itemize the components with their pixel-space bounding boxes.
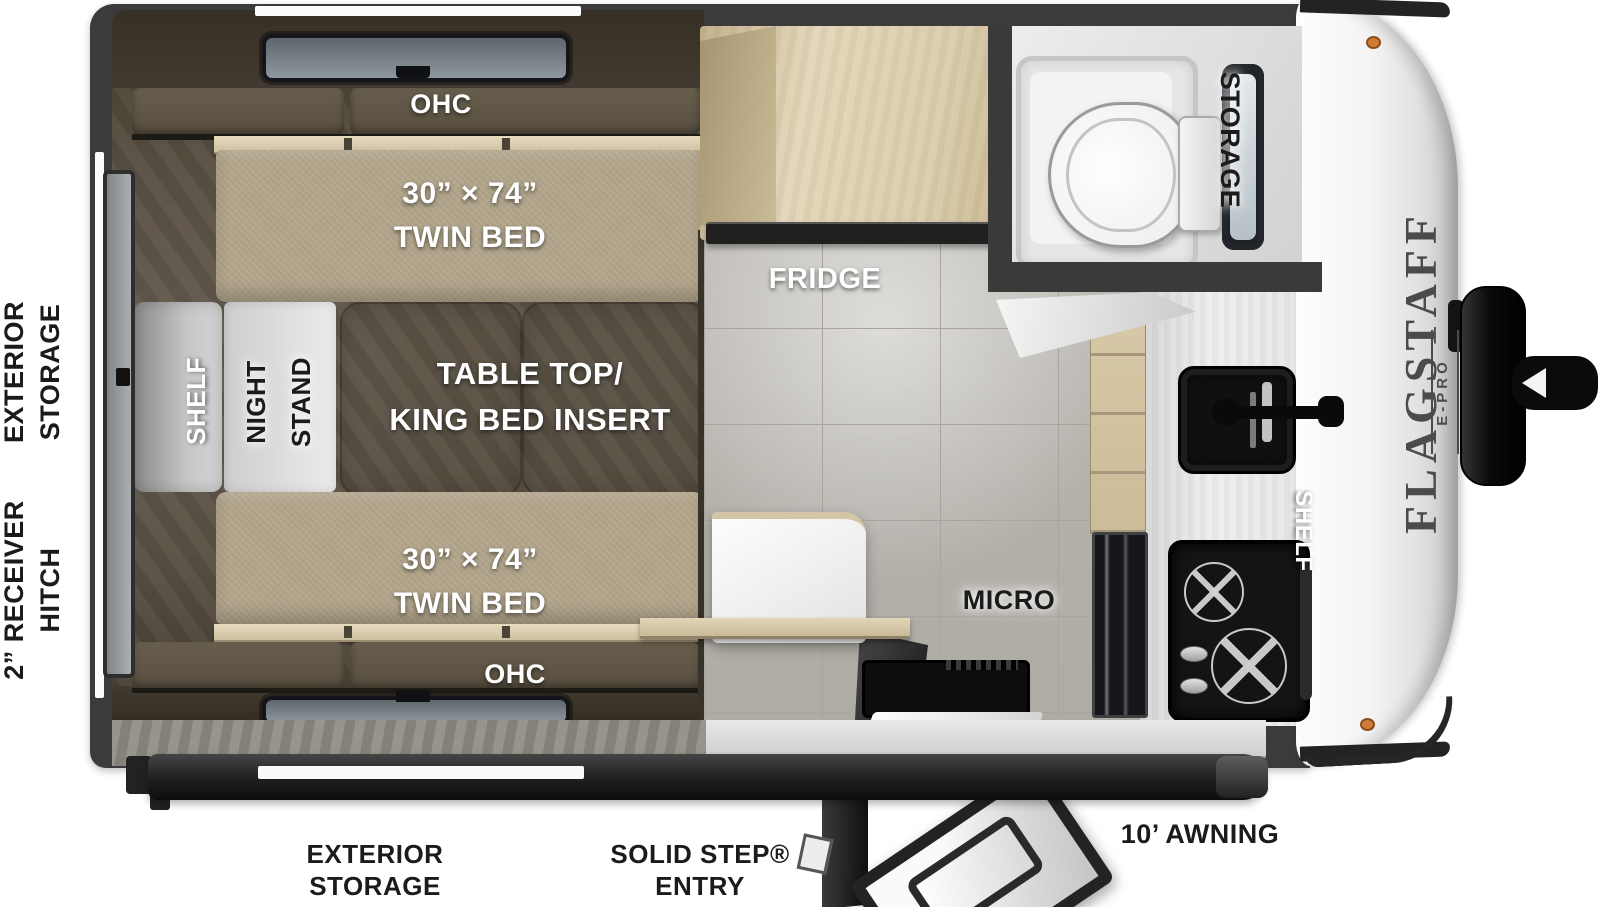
label-solid-step-l2: ENTRY xyxy=(555,870,845,902)
backrest-cushion xyxy=(132,642,344,690)
rail-notch xyxy=(502,138,510,150)
label-rear-exterior-storage: EXTERIOR STORAGE xyxy=(0,277,70,467)
label-twin-bed-bottom-size: 30” × 74” xyxy=(320,538,620,582)
marker-light-icon xyxy=(1366,36,1381,49)
rail-notch xyxy=(344,626,352,638)
faucet-handle xyxy=(1318,396,1344,427)
burner-icon xyxy=(1184,562,1244,622)
label-exterior-storage-l1: EXTERIOR xyxy=(255,838,495,870)
backrest-cushion xyxy=(132,88,344,136)
label-night-stand-l1: NIGHT xyxy=(234,302,279,502)
jack-crank-icon xyxy=(1522,368,1546,398)
cooktop-knob xyxy=(1180,646,1208,662)
label-night-stand: NIGHT STAND xyxy=(234,302,326,502)
brand-sub-logo: E-PRO xyxy=(1431,330,1459,454)
floorplan-canvas: OHC 30” × 74” TWIN BED SHELF NIGHT STAND… xyxy=(0,0,1600,907)
label-ohc-bottom: OHC xyxy=(435,658,595,690)
burner-icon xyxy=(1211,628,1287,704)
label-twin-bed-top-name: TWIN BED xyxy=(320,216,620,260)
bathroom-wall-front xyxy=(988,262,1322,292)
label-table-top-l1: TABLE TOP/ xyxy=(330,351,730,397)
body-trim-top xyxy=(255,6,581,16)
fridge-cabinet-side xyxy=(700,26,776,240)
microwave-vent xyxy=(946,660,1018,670)
rail-notch xyxy=(344,138,352,150)
solid-step-tread xyxy=(905,813,1046,907)
label-solid-step-l1: SOLID STEP® xyxy=(555,838,845,870)
label-exterior-storage: EXTERIOR STORAGE xyxy=(255,838,495,902)
label-night-stand-l2: STAND xyxy=(279,302,324,502)
cap-rim-corner xyxy=(1300,696,1455,768)
label-receiver-hitch-l1: 2” RECEIVER xyxy=(0,470,32,710)
label-awning: 10’ AWNING xyxy=(1075,818,1325,850)
bathroom-wall xyxy=(988,26,1012,292)
label-exterior-storage-l2: STORAGE xyxy=(255,870,495,902)
label-ohc-top: OHC xyxy=(361,88,521,120)
toilet-seat xyxy=(1066,118,1176,232)
jack-handle xyxy=(1512,356,1598,410)
label-solid-step-entry: SOLID STEP® ENTRY xyxy=(555,838,845,902)
label-bath-storage: STORAGE xyxy=(1213,40,1247,240)
cooktop-knob xyxy=(1180,678,1208,694)
label-table-top: TABLE TOP/ KING BED INSERT xyxy=(330,351,730,443)
awning-endcap xyxy=(1216,756,1268,798)
label-receiver-hitch-l2: HITCH xyxy=(32,470,68,710)
label-rear-storage-l1: EXTERIOR xyxy=(0,277,32,467)
label-kitchen-shelf: SHELF xyxy=(1289,466,1317,596)
marker-light-icon xyxy=(1360,718,1375,731)
label-twin-bed-top-size: 30” × 74” xyxy=(320,172,620,216)
rear-window-latch xyxy=(116,368,130,386)
rear-window xyxy=(103,170,135,678)
window-latch-bottom xyxy=(396,690,430,702)
label-twin-bed-bottom: 30” × 74” TWIN BED xyxy=(320,538,620,626)
pantry-glass-cabinet xyxy=(1092,532,1148,718)
bed-rail-bottom xyxy=(214,624,704,642)
window-latch-top xyxy=(396,66,430,78)
label-micro: MICRO xyxy=(929,584,1089,616)
fridge-counter-edge xyxy=(706,222,1018,244)
label-rear-storage-l2: STORAGE xyxy=(32,277,68,467)
label-fridge: FRIDGE xyxy=(735,262,915,297)
label-receiver-hitch: 2” RECEIVER HITCH xyxy=(0,470,70,710)
rail-notch xyxy=(502,626,510,638)
awning-trim xyxy=(258,766,584,779)
label-table-top-l2: KING BED INSERT xyxy=(330,397,730,443)
underbody-front xyxy=(706,720,1266,758)
foot-shelf xyxy=(640,618,910,639)
label-twin-bed-top: 30” × 74” TWIN BED xyxy=(320,172,620,260)
label-bed-shelf: SHELF xyxy=(179,321,213,481)
label-twin-bed-bottom-name: TWIN BED xyxy=(320,582,620,626)
